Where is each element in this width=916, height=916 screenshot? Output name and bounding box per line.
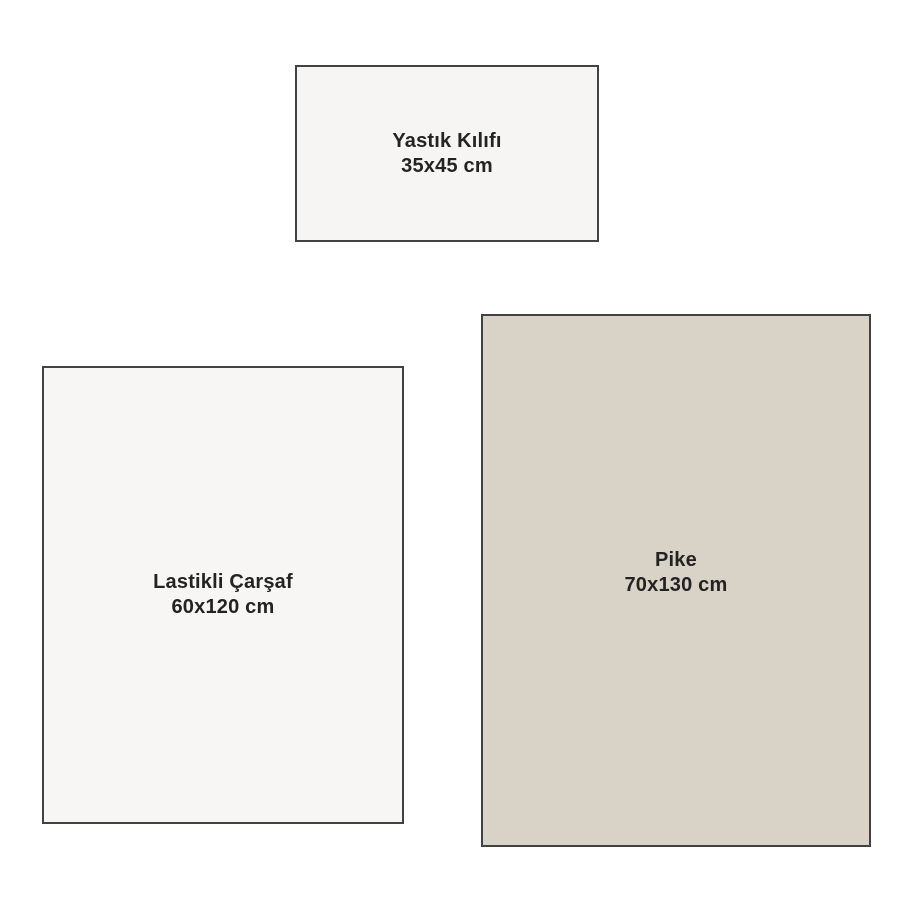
item-size-lastikli-carsaf: 60x120 cm bbox=[153, 595, 293, 620]
size-box-yastik-kilifi: Yastık Kılıfı 35x45 cm bbox=[295, 65, 599, 242]
size-box-pike: Pike 70x130 cm bbox=[481, 314, 871, 847]
item-size-yastik-kilifi: 35x45 cm bbox=[392, 154, 501, 179]
size-box-label: Pike 70x130 cm bbox=[624, 548, 727, 598]
size-box-label: Yastık Kılıfı 35x45 cm bbox=[392, 129, 501, 179]
item-name-pike: Pike bbox=[624, 548, 727, 573]
size-box-label: Lastikli Çarşaf 60x120 cm bbox=[153, 570, 293, 620]
item-size-pike: 70x130 cm bbox=[624, 573, 727, 598]
size-diagram-canvas: Yastık Kılıfı 35x45 cm Lastikli Çarşaf 6… bbox=[0, 0, 916, 916]
size-box-lastikli-carsaf: Lastikli Çarşaf 60x120 cm bbox=[42, 366, 404, 824]
item-name-lastikli-carsaf: Lastikli Çarşaf bbox=[153, 570, 293, 595]
item-name-yastik-kilifi: Yastık Kılıfı bbox=[392, 129, 501, 154]
